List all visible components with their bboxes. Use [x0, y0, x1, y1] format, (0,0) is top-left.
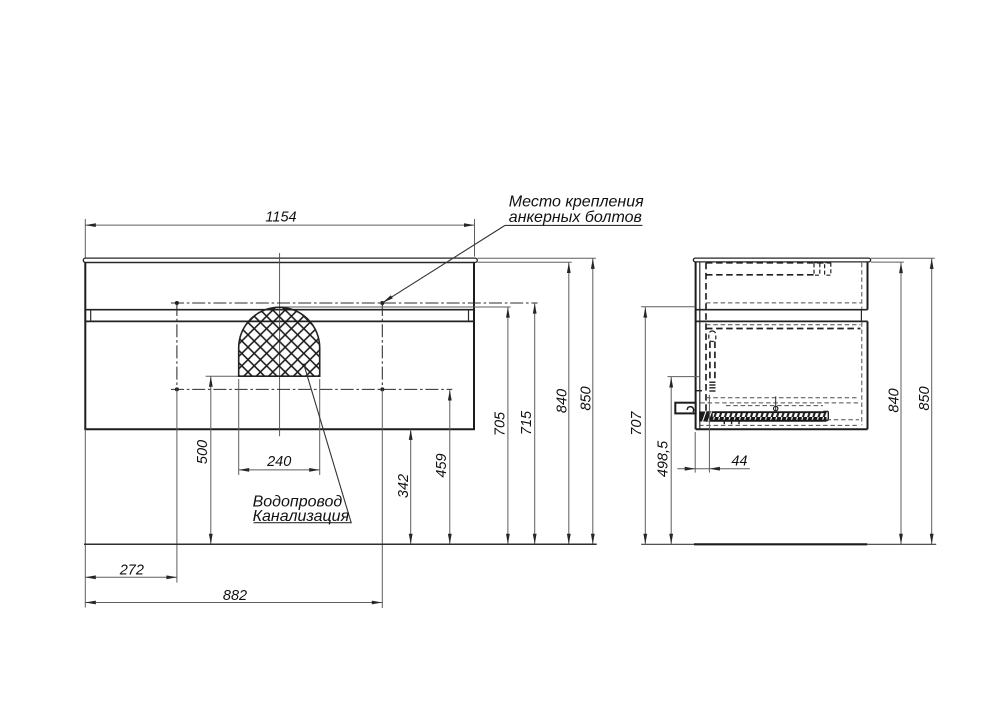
svg-text:342: 342: [396, 474, 412, 498]
svg-text:500: 500: [195, 440, 211, 464]
svg-text:850: 850: [579, 386, 595, 410]
svg-text:272: 272: [119, 562, 144, 578]
svg-text:44: 44: [731, 454, 747, 470]
svg-text:882: 882: [223, 588, 247, 604]
svg-text:850: 850: [917, 386, 933, 410]
svg-text:459: 459: [434, 453, 450, 477]
svg-text:1154: 1154: [265, 209, 296, 225]
svg-text:Место крепления: Место крепления: [509, 194, 644, 211]
svg-text:240: 240: [266, 454, 291, 470]
svg-text:840: 840: [555, 389, 571, 413]
svg-text:анкерных болтов: анкерных болтов: [509, 209, 642, 226]
svg-text:498,5: 498,5: [656, 440, 672, 477]
svg-text:Канализация: Канализация: [253, 508, 350, 525]
svg-text:705: 705: [492, 411, 508, 436]
svg-text:715: 715: [519, 410, 535, 435]
svg-text:707: 707: [629, 411, 645, 436]
svg-text:840: 840: [887, 388, 903, 412]
